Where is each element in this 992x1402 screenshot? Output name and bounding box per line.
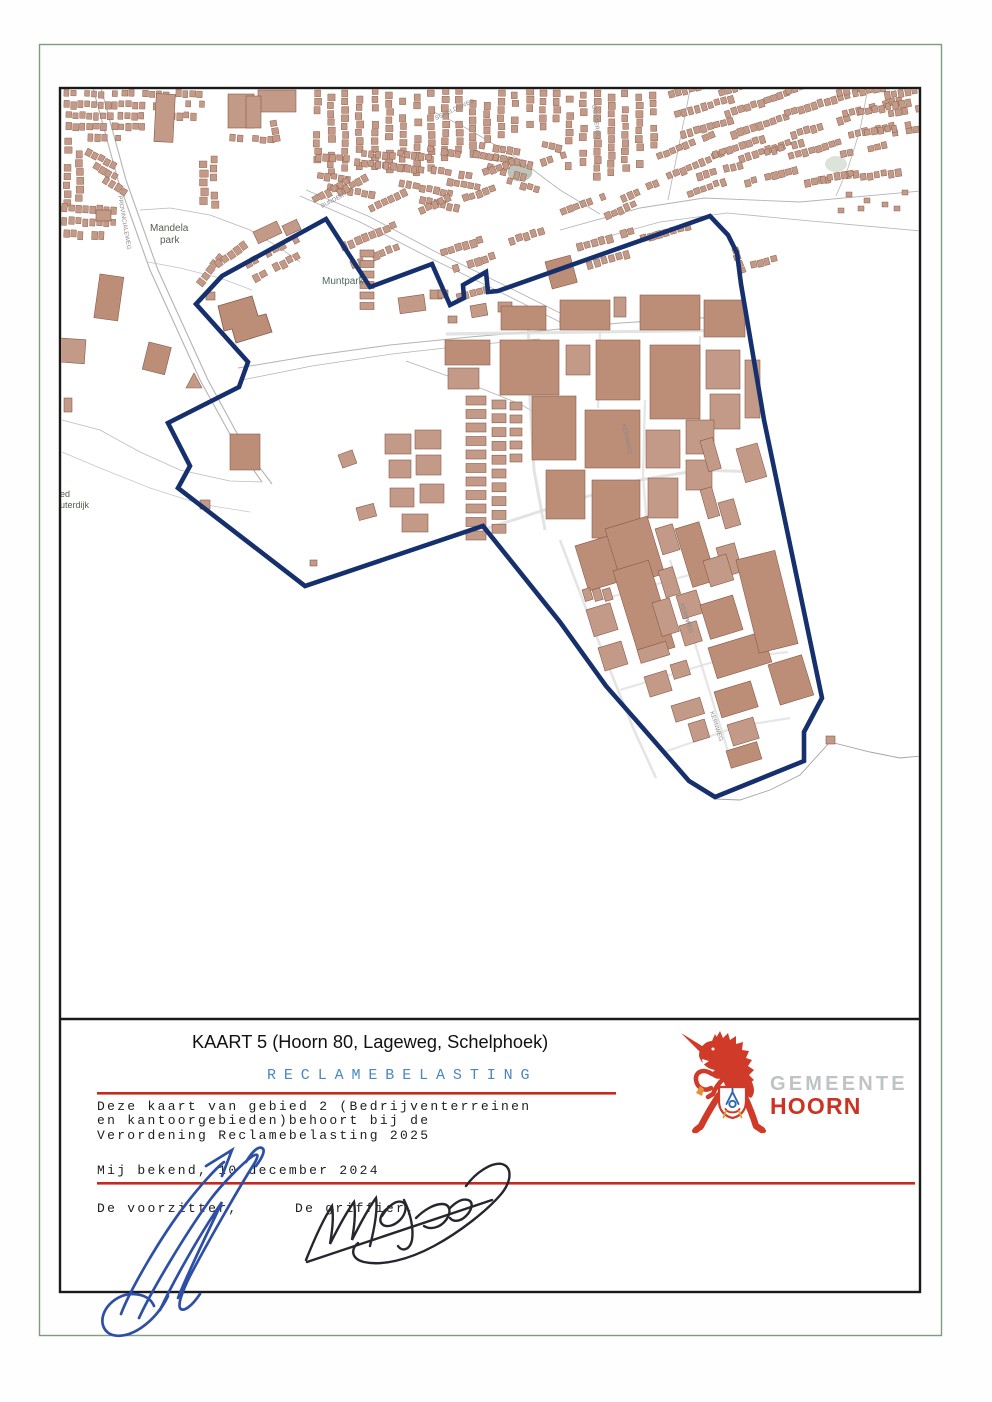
svg-text:KAART 5 (Hoorn 80, Lageweg, Sc: KAART 5 (Hoorn 80, Lageweg, Schelphoek) [192,1032,548,1052]
svg-text:Mandela: Mandela [150,223,189,234]
svg-text:HOORN: HOORN [770,1093,862,1119]
svg-text:GEMEENTE: GEMEENTE [770,1073,908,1095]
svg-text:RECLAMEBELASTING: RECLAMEBELASTING [267,1067,537,1084]
svg-text:Mij bekend, 10 december 2024: Mij bekend, 10 december 2024 [97,1163,380,1178]
svg-text:Verordening Reclamebelasting 2: Verordening Reclamebelasting 2025 [97,1128,430,1143]
svg-text:en kantoorgebieden)behoort bij: en kantoorgebieden)behoort bij de [97,1113,430,1128]
svg-text:Deze kaart van gebied 2 (Bedri: Deze kaart van gebied 2 (Bedrijventerrei… [97,1099,531,1114]
svg-text:park: park [160,235,180,246]
svg-text:Muntpark: Muntpark [322,276,365,287]
svg-text:ed: ed [60,489,70,499]
